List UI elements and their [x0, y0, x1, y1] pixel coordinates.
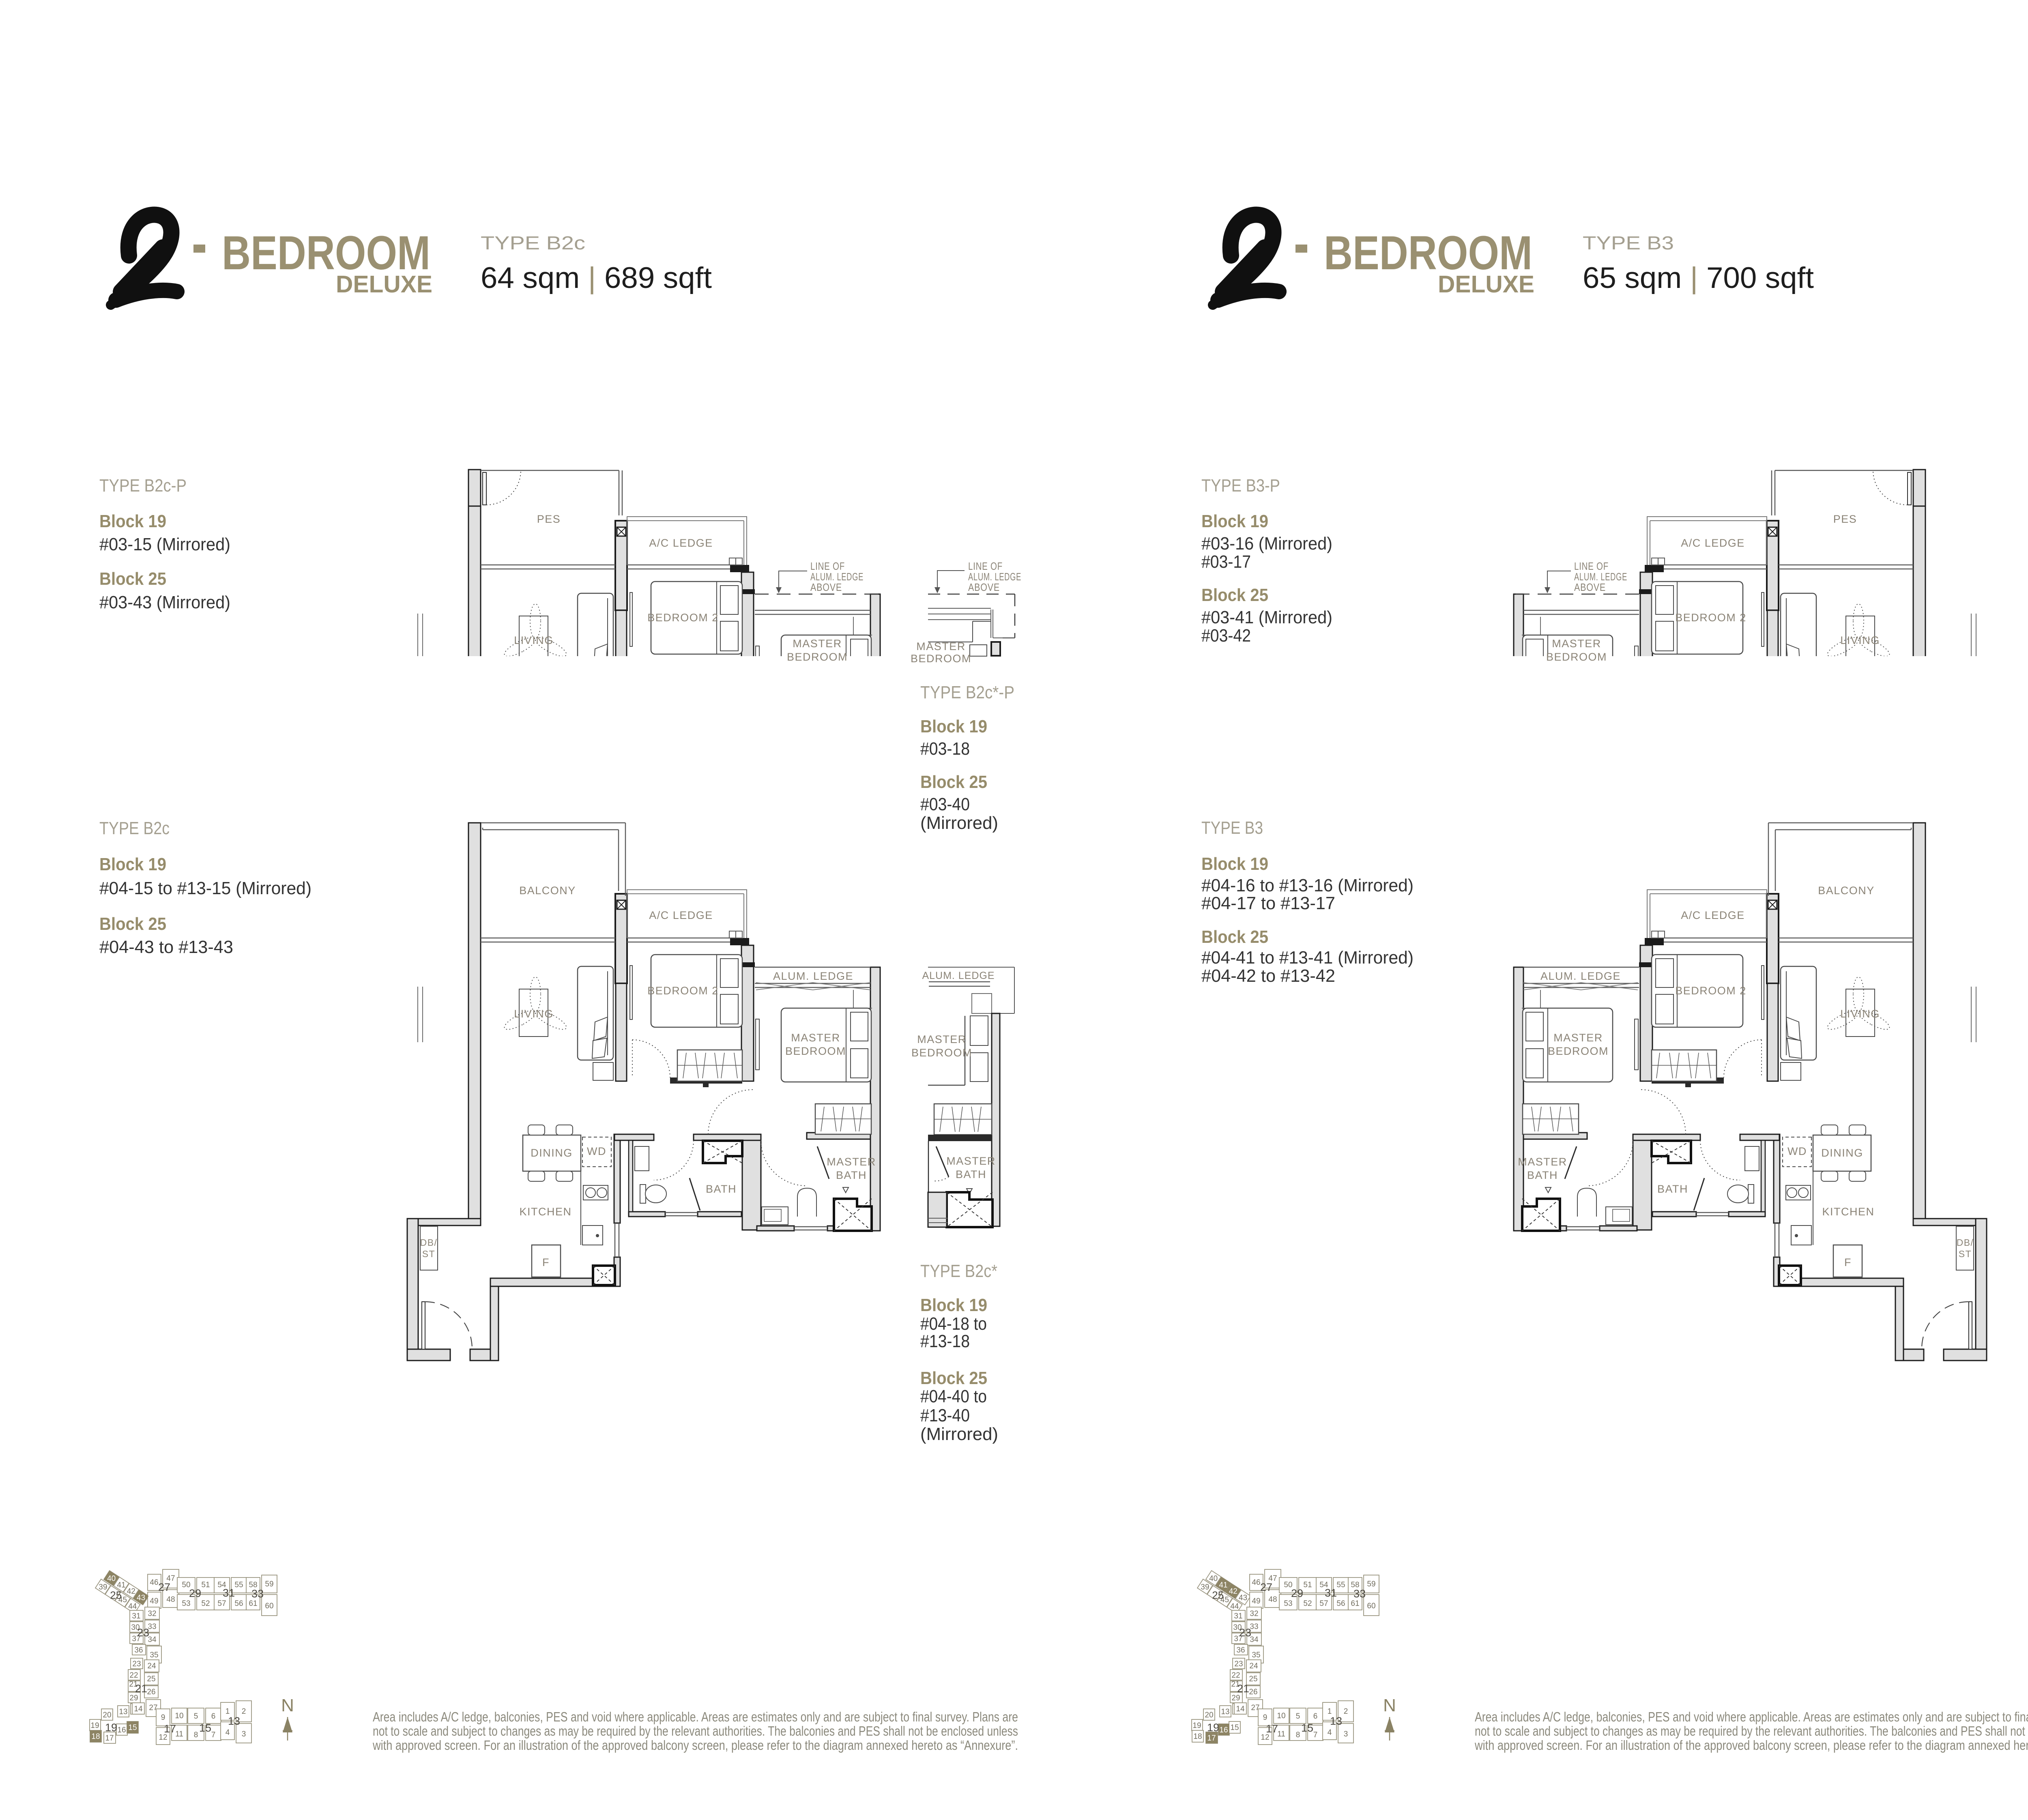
svg-text:41: 41 — [1219, 1581, 1227, 1589]
svg-text:LIVING: LIVING — [514, 1008, 554, 1020]
svg-text:43: 43 — [1239, 1594, 1247, 1602]
svg-text:MASTER: MASTER — [793, 637, 842, 650]
svg-text:Area includes A/C ledge, balco: Area includes A/C ledge, balconies, PES … — [1475, 1709, 2028, 1724]
svg-text:42: 42 — [127, 1587, 135, 1596]
svg-text:MASTER: MASTER — [1552, 637, 1601, 650]
svg-text:A/C LEDGE: A/C LEDGE — [1681, 537, 1745, 549]
svg-text:TYPE B2c: TYPE B2c — [99, 818, 170, 838]
svg-text:BEDROOM: BEDROOM — [911, 652, 971, 665]
svg-text:F: F — [1844, 1256, 1852, 1268]
svg-text:KITCHEN: KITCHEN — [1822, 1206, 1874, 1218]
svg-text:N: N — [1383, 1696, 1396, 1715]
svg-text:#03-40: #03-40 — [920, 794, 970, 814]
svg-text:TYPE B2c: TYPE B2c — [481, 232, 585, 253]
svg-text:with approved screen. For an i: with approved screen. For an illustratio… — [1474, 1738, 2028, 1753]
svg-text:with approved screen. For an i: with approved screen. For an illustratio… — [372, 1738, 1018, 1753]
svg-text:#13-40: #13-40 — [920, 1406, 970, 1425]
svg-text:BATH: BATH — [836, 1169, 867, 1181]
svg-text:PES: PES — [1833, 513, 1857, 525]
svg-text:16: 16 — [1219, 1726, 1228, 1734]
svg-text:LIVING: LIVING — [514, 634, 554, 646]
svg-text:BEDROOM 2: BEDROOM 2 — [647, 612, 719, 624]
svg-text:ABOVE: ABOVE — [968, 581, 1000, 593]
svg-text:Block 25: Block 25 — [920, 772, 987, 792]
svg-text:ST: ST — [1959, 1249, 1972, 1259]
svg-text:BALCONY: BALCONY — [519, 884, 576, 897]
svg-text:BEDROOM: BEDROOM — [787, 651, 848, 663]
svg-text:MASTER: MASTER — [827, 1156, 876, 1168]
svg-text:DINING: DINING — [1821, 1147, 1863, 1159]
svg-text:F: F — [542, 1256, 550, 1268]
svg-text:Block 19: Block 19 — [99, 511, 166, 531]
svg-text:15: 15 — [1230, 1723, 1239, 1732]
svg-text:DB/: DB/ — [1957, 1237, 1974, 1248]
svg-text:A/C LEDGE: A/C LEDGE — [1681, 909, 1745, 921]
svg-text:DELUXE: DELUXE — [336, 271, 432, 298]
svg-text:40: 40 — [107, 1575, 116, 1583]
svg-text:Block 25: Block 25 — [1201, 927, 1268, 947]
svg-text:65 sqm | 700 sqft: 65 sqm | 700 sqft — [1583, 262, 1814, 294]
svg-text:#04-16 to #13-16 (Mirrored): #04-16 to #13-16 (Mirrored) — [1201, 876, 1414, 895]
svg-text:ABOVE: ABOVE — [1574, 581, 1606, 593]
svg-text:#03-43 (Mirrored): #03-43 (Mirrored) — [99, 592, 230, 612]
svg-text:#03-15 (Mirrored): #03-15 (Mirrored) — [99, 534, 230, 554]
svg-text:ALUM. LEDGE: ALUM. LEDGE — [1540, 970, 1621, 982]
svg-text:MASTER: MASTER — [1553, 1032, 1603, 1044]
svg-text:not to scale and subject to ch: not to scale and subject to changes as m… — [373, 1723, 1018, 1738]
svg-text:BATH: BATH — [706, 1183, 737, 1195]
svg-text:#03-42: #03-42 — [1201, 626, 1251, 646]
svg-text:BATH: BATH — [1527, 1169, 1558, 1181]
svg-text:DELUXE: DELUXE — [1438, 271, 1534, 298]
svg-text:TYPE B2c*-P: TYPE B2c*-P — [920, 682, 1014, 702]
svg-text:LIVING: LIVING — [1840, 1008, 1880, 1020]
svg-text:BEDROOM 2: BEDROOM 2 — [1675, 985, 1747, 997]
svg-text:BEDROOM 2: BEDROOM 2 — [647, 985, 719, 997]
svg-text:LIVING: LIVING — [1840, 634, 1880, 646]
svg-text:BALCONY: BALCONY — [1818, 884, 1875, 897]
svg-text:15: 15 — [128, 1723, 137, 1732]
svg-text:DINING: DINING — [531, 1147, 573, 1159]
svg-text:16: 16 — [117, 1726, 126, 1734]
svg-text:ABOVE: ABOVE — [810, 581, 842, 593]
svg-text:42: 42 — [1229, 1587, 1237, 1596]
svg-text:41: 41 — [117, 1581, 125, 1589]
svg-text:BEDROOM 2: BEDROOM 2 — [1675, 612, 1747, 624]
svg-text:Block 19: Block 19 — [1201, 854, 1268, 874]
svg-text:WD: WD — [1787, 1145, 1807, 1157]
svg-text:Block 25: Block 25 — [99, 914, 166, 934]
svg-text:#04-15 to #13-15 (Mirrored): #04-15 to #13-15 (Mirrored) — [99, 878, 312, 898]
svg-text:BEDROOM: BEDROOM — [1548, 1045, 1609, 1057]
svg-text:ST: ST — [422, 1249, 435, 1259]
svg-text:Block 19: Block 19 — [99, 854, 166, 874]
svg-text:Block 19: Block 19 — [920, 1295, 987, 1315]
svg-text:Area includes A/C ledge, balco: Area includes A/C ledge, balconies, PES … — [373, 1709, 1018, 1724]
svg-text:DB/: DB/ — [420, 1237, 438, 1248]
svg-text:#04-18 to: #04-18 to — [920, 1314, 987, 1334]
svg-text:#04-40 to: #04-40 to — [920, 1386, 987, 1406]
svg-text:MASTER: MASTER — [1518, 1156, 1567, 1168]
svg-text:BEDROOM: BEDROOM — [785, 1045, 846, 1057]
svg-text:MASTER: MASTER — [946, 1155, 996, 1167]
svg-text:BATH: BATH — [1657, 1183, 1688, 1195]
svg-text:ALUM. LEDGE: ALUM. LEDGE — [773, 970, 853, 982]
svg-text:TYPE B2c-P: TYPE B2c-P — [99, 476, 187, 496]
svg-text:Block 19: Block 19 — [920, 717, 987, 736]
svg-text:18: 18 — [91, 1732, 100, 1741]
svg-text:#03-18: #03-18 — [920, 739, 970, 759]
svg-text:ALUM. LEDGE: ALUM. LEDGE — [922, 970, 995, 981]
svg-text:17: 17 — [105, 1734, 114, 1743]
svg-text:TYPE B3: TYPE B3 — [1583, 232, 1674, 253]
svg-text:64 sqm | 689 sqft: 64 sqm | 689 sqft — [481, 262, 712, 294]
svg-text:#04-43 to #13-43: #04-43 to #13-43 — [99, 937, 233, 957]
svg-text:BEDROOM: BEDROOM — [1546, 651, 1607, 663]
svg-text:(Mirrored): (Mirrored) — [920, 813, 998, 833]
svg-text:TYPE B2c*: TYPE B2c* — [920, 1261, 997, 1281]
svg-text:not to scale and subject to ch: not to scale and subject to changes as m… — [1475, 1723, 2028, 1738]
svg-text:TYPE B3-P: TYPE B3-P — [1201, 476, 1280, 496]
svg-text:A/C LEDGE: A/C LEDGE — [649, 537, 713, 549]
svg-text:43: 43 — [137, 1594, 145, 1602]
svg-text:#03-41 (Mirrored): #03-41 (Mirrored) — [1201, 607, 1332, 627]
svg-text:#04-17 to #13-17: #04-17 to #13-17 — [1201, 893, 1335, 913]
svg-text:PES: PES — [537, 513, 561, 525]
svg-text:TYPE B3: TYPE B3 — [1201, 818, 1263, 838]
svg-text:#04-41 to #13-41 (Mirrored): #04-41 to #13-41 (Mirrored) — [1201, 948, 1414, 968]
svg-text:40: 40 — [1209, 1575, 1218, 1583]
svg-text:N: N — [281, 1696, 294, 1715]
svg-text:Block 25: Block 25 — [1201, 585, 1268, 605]
svg-text:Block 25: Block 25 — [920, 1368, 987, 1388]
svg-text:Block 19: Block 19 — [1201, 511, 1268, 531]
svg-text:#03-16 (Mirrored): #03-16 (Mirrored) — [1201, 534, 1332, 554]
svg-text:Block 25: Block 25 — [99, 569, 166, 589]
svg-text:17: 17 — [1207, 1734, 1216, 1743]
svg-text:MASTER: MASTER — [917, 1033, 967, 1045]
svg-text:WD: WD — [587, 1145, 606, 1157]
svg-text:#04-42 to #13-42: #04-42 to #13-42 — [1201, 966, 1335, 986]
svg-text:(Mirrored): (Mirrored) — [920, 1424, 998, 1444]
svg-text:BEDROOM: BEDROOM — [911, 1047, 972, 1059]
svg-text:A/C LEDGE: A/C LEDGE — [649, 909, 713, 921]
svg-text:#13-18: #13-18 — [920, 1331, 970, 1351]
svg-text:KITCHEN: KITCHEN — [519, 1206, 571, 1218]
svg-text:MASTER: MASTER — [916, 640, 966, 652]
svg-text:BATH: BATH — [956, 1168, 986, 1180]
svg-text:MASTER: MASTER — [791, 1032, 840, 1044]
svg-text:#03-17: #03-17 — [1201, 552, 1251, 572]
svg-text:18: 18 — [1193, 1732, 1202, 1741]
